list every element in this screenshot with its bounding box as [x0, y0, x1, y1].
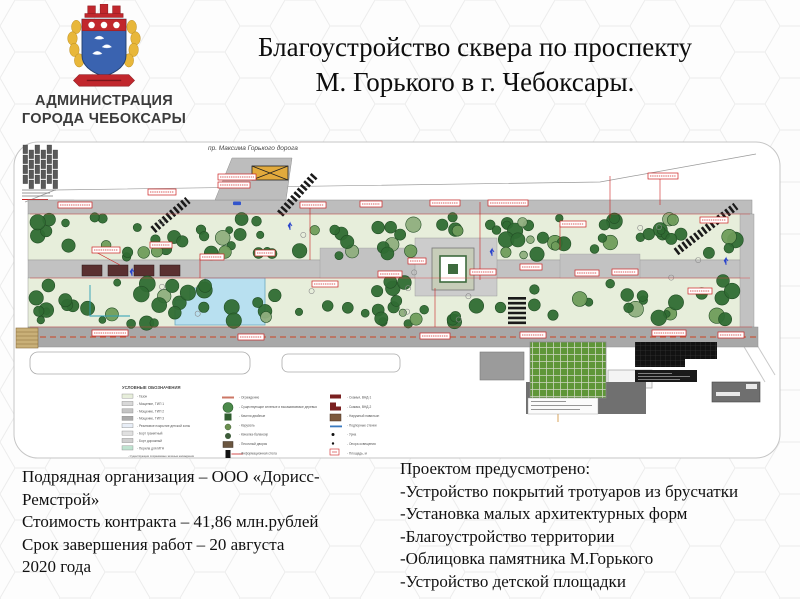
- svg-text:- Мощение, ТИП 1: - Мощение, ТИП 1: [137, 402, 164, 406]
- org-name-line1: АДМИНИСТРАЦИЯ: [8, 92, 200, 110]
- svg-text:- Ограждение: - Ограждение: [239, 396, 259, 400]
- svg-text:- Резиновое покрытие детской з: - Резиновое покрытие детской зоны: [137, 424, 191, 428]
- svg-text:- Существующие зеленые и высаж: - Существующие зеленые и высаживаемые де…: [239, 405, 317, 409]
- svg-text:- Мощение, ТИП 2: - Мощение, ТИП 2: [137, 409, 164, 413]
- contract-info: Подрядная организация – ООО «Дорисс- Рем…: [22, 466, 394, 579]
- contract-line: Подрядная организация – ООО «Дорисс-: [22, 466, 394, 489]
- contract-line: Срок завершения работ – 20 августа: [22, 534, 394, 557]
- project-scope: Проектом предусмотрено: -Устройство покр…: [400, 458, 792, 594]
- svg-text:- Газон: - Газон: [137, 395, 147, 399]
- site-plan: пр. Максима Горького дорога: [0, 130, 800, 465]
- project-scope-item: -Устройство покрытий тротуаров из брусча…: [400, 481, 792, 504]
- svg-text:- Наружный павильон: - Наружный павильон: [347, 414, 380, 418]
- svg-text:- Скамья, ВНД-1: - Скамья, ВНД-1: [347, 396, 371, 400]
- svg-text:- Скамья, ВНД-2: - Скамья, ВНД-2: [347, 405, 371, 409]
- svg-text:- Урна: - Урна: [347, 433, 356, 437]
- slide-title-line1: Благоустройство сквера по проспекту: [195, 30, 755, 65]
- svg-text:- Качалка-балансир: - Качалка-балансир: [239, 433, 268, 437]
- contract-line: 2020 года: [22, 556, 394, 579]
- svg-text:- Площадь, м: - Площадь, м: [347, 451, 367, 455]
- contract-line: Стоимость контракта – 41,86 млн.рублей: [22, 511, 394, 534]
- project-scope-item: -Облицовка памятника М.Горького: [400, 548, 792, 571]
- project-scope-title: Проектом предусмотрено:: [400, 458, 792, 481]
- org-name-line2: ГОРОДА ЧЕБОКСАРЫ: [8, 110, 200, 128]
- project-scope-item: -Устройство детской площадки: [400, 571, 792, 594]
- svg-text:- Борт дорожный: - Борт дорожный: [137, 439, 162, 443]
- shop-building: [712, 382, 760, 402]
- svg-text:- Опора освещения: - Опора освещения: [347, 442, 376, 446]
- svg-text:- Песочный дворик: - Песочный дворик: [239, 442, 268, 446]
- svg-text:- Борт гранитный: - Борт гранитный: [137, 432, 163, 436]
- svg-text:- Карусель: - Карусель: [239, 423, 255, 427]
- svg-text:- Информационная стела: - Информационная стела: [239, 451, 277, 455]
- stairs-southwest: [16, 328, 38, 348]
- contract-line: Ремстрой»: [22, 489, 394, 512]
- project-scope-item: -Благоустройство территории: [400, 526, 792, 549]
- slide-title: Благоустройство сквера по проспекту М. Г…: [195, 30, 755, 100]
- road-label: пр. Максима Горького дорога: [208, 144, 298, 152]
- project-scope-item: -Установка малых архитектурных форм: [400, 503, 792, 526]
- svg-text:УСЛОВНЫЕ ОБОЗНАЧЕНИЯ: УСЛОВНЫЕ ОБОЗНАЧЕНИЯ: [122, 385, 180, 390]
- svg-text:- Качели двойные: - Качели двойные: [239, 414, 265, 418]
- city-administration-logo: АДМИНИСТРАЦИЯ ГОРОДА ЧЕБОКСАРЫ: [8, 4, 200, 124]
- slide-title-line2: М. Горького в г. Чебоксары.: [195, 65, 755, 100]
- cheboksary-coat-of-arms-icon: [56, 4, 152, 90]
- gorky-monument: [432, 248, 474, 290]
- top-sidewalk: [28, 200, 752, 214]
- svg-text:- Существующие сохраняемые зел: - Существующие сохраняемые зеленые насаж…: [128, 454, 194, 458]
- svg-text:- Мощение, ТИП 3: - Мощение, ТИП 3: [137, 417, 164, 421]
- svg-text:- Подпорные стенки: - Подпорные стенки: [347, 423, 377, 427]
- slide-header: АДМИНИСТРАЦИЯ ГОРОДА ЧЕБОКСАРЫ Благоустр…: [0, 0, 800, 130]
- svg-text:- Перила для МГН: - Перила для МГН: [137, 446, 165, 450]
